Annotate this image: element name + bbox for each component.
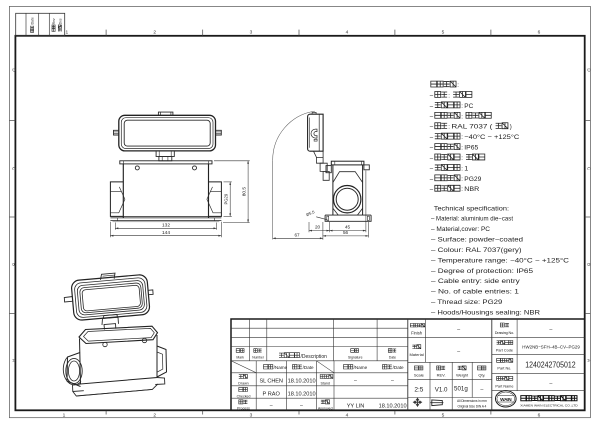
svg-text:Weight: Weight: [456, 373, 469, 378]
svg-text:XIAMEN WAIN ELECTRICAL CO.,LTD: XIAMEN WAIN ELECTRICAL CO.,LTD: [520, 404, 578, 408]
svg-text:P RAO: P RAO: [263, 392, 281, 398]
svg-text:HW2NB−SFH–4B–CV–PG29: HW2NB−SFH–4B–CV–PG29: [522, 344, 580, 349]
svg-text:– Thread size: PG29: – Thread size: PG29: [431, 299, 503, 306]
svg-text::: :: [461, 146, 463, 152]
svg-text:– Degree of protection: IP65: – Degree of protection: IP65: [431, 268, 534, 275]
svg-text:–: –: [354, 378, 357, 384]
svg-text:All Dimensions in mm: All Dimensions in mm: [457, 399, 487, 403]
svg-text:–: –: [430, 104, 434, 110]
svg-text:REV.: REV.: [437, 373, 446, 378]
svg-text:– Material,cover: PC: – Material,cover: PC: [431, 227, 491, 233]
svg-text:1: 1: [63, 413, 66, 419]
svg-text:3: 3: [250, 29, 253, 35]
svg-text:Part No.: Part No.: [497, 367, 511, 371]
svg-text:5: 5: [442, 29, 445, 35]
svg-text:–: –: [270, 403, 273, 409]
svg-text:–: –: [430, 125, 434, 131]
svg-text:18.10.2010: 18.10.2010: [288, 379, 316, 385]
svg-text:– Surface: powder−coated: – Surface: powder−coated: [431, 237, 524, 244]
svg-text::: :: [461, 177, 463, 183]
svg-text:D: D: [587, 68, 592, 72]
svg-text:501g: 501g: [454, 386, 468, 393]
svg-text::: :: [461, 166, 463, 172]
svg-text:Ø5.5: Ø5.5: [305, 209, 316, 217]
svg-text:Approved: Approved: [318, 407, 333, 411]
svg-text:A: A: [587, 359, 592, 363]
svg-text:Rev: Rev: [52, 18, 56, 24]
svg-text:Original Size DIN A 4: Original Size DIN A 4: [458, 405, 487, 409]
svg-text:– Material: aluminium die−cas: – Material: aluminium die−cast: [431, 217, 513, 223]
svg-text:– Hoods/Housings sealing: NBR: – Hoods/Housings sealing: NBR: [431, 310, 541, 317]
svg-text:2:5: 2:5: [414, 386, 423, 393]
svg-text::: :: [461, 104, 463, 110]
svg-text:2: 2: [153, 29, 156, 35]
svg-text:Drawing No.: Drawing No.: [495, 331, 514, 335]
svg-text:PC: PC: [464, 103, 473, 110]
svg-text:Number: Number: [252, 355, 265, 359]
svg-text:–: –: [549, 327, 552, 333]
svg-text:6: 6: [538, 29, 541, 35]
svg-text:–: –: [480, 387, 483, 393]
svg-text:Checked: Checked: [237, 395, 251, 399]
svg-text::: :: [448, 125, 450, 131]
svg-text:/Name: /Name: [274, 365, 288, 370]
svg-text:4: 4: [346, 413, 349, 419]
svg-text:67: 67: [294, 233, 300, 238]
svg-text:Qty.: Qty.: [478, 373, 485, 378]
svg-text:/Date: /Date: [393, 365, 404, 370]
svg-text:1: 1: [464, 165, 468, 172]
svg-text::: :: [461, 187, 463, 193]
svg-text:Drawn: Drawn: [238, 382, 248, 386]
svg-text:/Date: /Date: [31, 17, 35, 25]
svg-text:–: –: [430, 187, 434, 193]
svg-text:Signature: Signature: [348, 355, 363, 359]
svg-text:18.10.2010: 18.10.2010: [288, 392, 316, 398]
svg-text:B: B: [587, 263, 592, 266]
svg-text:IP65: IP65: [464, 145, 478, 152]
svg-text:Process: Process: [237, 407, 250, 411]
svg-text:RAL 7037 (: RAL 7037 (: [451, 124, 493, 131]
svg-text:45: 45: [345, 225, 351, 230]
svg-text:132: 132: [162, 223, 170, 229]
svg-text::: :: [461, 156, 463, 162]
svg-text::: :: [448, 93, 450, 99]
svg-text:Finish: Finish: [411, 330, 423, 335]
svg-text:Date: Date: [389, 355, 396, 359]
svg-text:–: –: [457, 348, 460, 354]
svg-text:–: –: [430, 146, 434, 152]
svg-text:Material: Material: [409, 352, 423, 357]
svg-text:– Cable entry: side entry: – Cable entry: side entry: [431, 278, 521, 285]
svg-text:Des: Des: [58, 18, 62, 24]
svg-text:2: 2: [153, 413, 156, 419]
svg-text:–: –: [430, 177, 434, 183]
svg-text:144: 144: [162, 230, 170, 236]
svg-text:–: –: [430, 166, 434, 172]
svg-text:–: –: [391, 378, 394, 384]
svg-text:Scale: Scale: [414, 373, 425, 378]
svg-text:1: 1: [65, 29, 68, 35]
svg-text::: :: [461, 135, 463, 141]
svg-text:−40°C − +125°C: −40°C − +125°C: [464, 133, 519, 141]
svg-text:–: –: [430, 93, 434, 99]
svg-text:PG29: PG29: [224, 193, 229, 204]
svg-text:4: 4: [346, 29, 349, 35]
svg-text:–: –: [430, 114, 434, 120]
svg-text:– Temperature range: −40°C −: – Temperature range: −40°C − +125°C: [431, 257, 570, 264]
svg-text:56: 56: [343, 230, 349, 235]
svg-text:/Date: /Date: [303, 365, 314, 370]
svg-text:–: –: [457, 327, 460, 333]
svg-text:PG29: PG29: [464, 176, 481, 183]
svg-text:6: 6: [538, 413, 541, 419]
svg-text:): ): [510, 125, 512, 131]
svg-text:SL CHEN: SL CHEN: [260, 379, 283, 385]
svg-text:3: 3: [250, 413, 253, 419]
svg-text:NBR: NBR: [464, 186, 479, 193]
svg-text:B: B: [11, 263, 16, 266]
svg-text:Mark: Mark: [236, 355, 244, 359]
svg-text:V1.0: V1.0: [435, 386, 448, 393]
svg-text:C: C: [587, 167, 592, 171]
svg-text:–: –: [430, 156, 434, 162]
svg-text:WAIN: WAIN: [500, 397, 512, 402]
svg-text:–: –: [300, 403, 303, 409]
svg-text:/Description: /Description: [301, 354, 328, 360]
svg-text:Stand: Stand: [320, 382, 329, 386]
svg-text:/Name: /Name: [354, 365, 368, 370]
svg-text:18.10.2010: 18.10.2010: [379, 404, 407, 410]
svg-text:– No. of cable entries: 1: – No. of cable entries: 1: [431, 289, 520, 296]
svg-text:5: 5: [442, 413, 445, 419]
svg-text:Part Code: Part Code: [496, 348, 513, 352]
svg-text::: :: [457, 83, 459, 89]
svg-text:Part Name: Part Name: [495, 385, 513, 389]
svg-text:YY LIN: YY LIN: [347, 404, 365, 410]
svg-text:1240242705012: 1240242705012: [525, 360, 576, 369]
svg-text::: :: [461, 114, 463, 120]
svg-text:– Colour: RAL 7037(gery): – Colour: RAL 7037(gery): [431, 247, 522, 254]
svg-text:–: –: [549, 380, 552, 386]
svg-text:80.5: 80.5: [241, 187, 247, 197]
svg-text:–: –: [430, 135, 434, 141]
svg-text:20: 20: [315, 225, 321, 230]
svg-text:Technical specification:: Technical specification:: [434, 205, 510, 212]
